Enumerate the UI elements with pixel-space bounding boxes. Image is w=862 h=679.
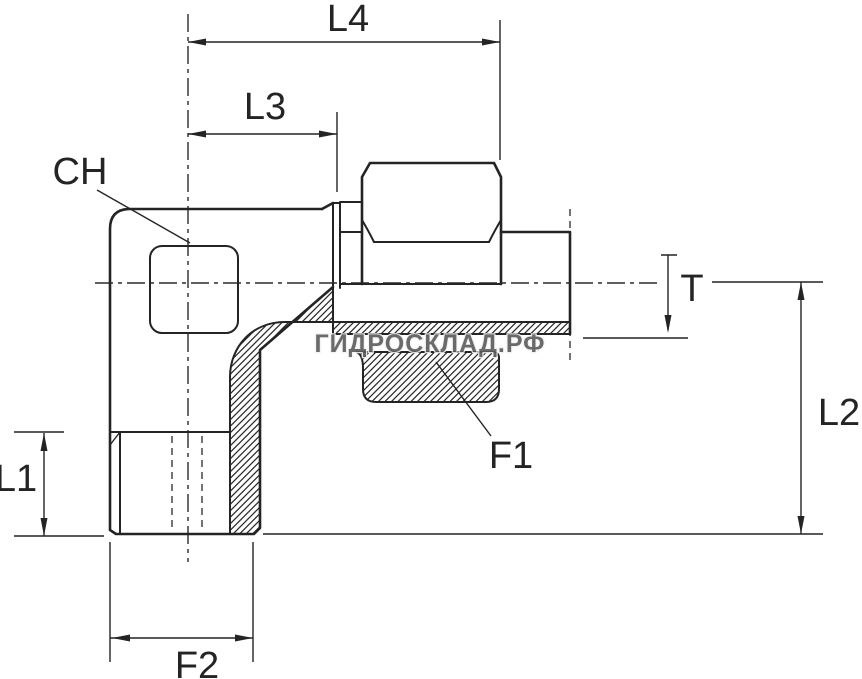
nut-profile (362, 163, 501, 284)
ext-lines-l2 (263, 282, 823, 534)
label-l3: L3 (244, 86, 286, 128)
body-top-chamfer (322, 203, 333, 209)
section-hatch-areas (230, 287, 570, 534)
arrowhead (188, 131, 206, 138)
ext-lines-f2 (110, 542, 253, 662)
arrowhead (798, 282, 805, 300)
arrowhead (482, 39, 500, 46)
arrowhead (41, 433, 48, 451)
technical-drawing-canvas: L4 L3 CH T L2 L1 F1 F2 ГИДРОСКЛАД.РФ (0, 0, 862, 679)
leg-thread-chamfer (110, 432, 120, 445)
label-l4: L4 (327, 0, 369, 40)
arrowhead (665, 315, 672, 333)
body-outer-profile (110, 209, 333, 534)
arrowhead (188, 39, 206, 46)
elbow-fitting-drawing: L4 L3 CH T L2 L1 F1 F2 ГИДРОСКЛАД.РФ (0, 0, 862, 679)
leg-bore-hidden-lines (172, 436, 202, 532)
arrowhead (235, 635, 253, 642)
nut-facet-blend-arcs (362, 220, 501, 242)
body-counterbore (150, 246, 238, 333)
arrowhead (798, 516, 805, 534)
body-wall-section-hatch (230, 287, 570, 534)
dim-lines-t (583, 255, 688, 338)
arrowhead (41, 518, 48, 536)
label-t: T (680, 268, 703, 310)
label-l1: L1 (0, 458, 37, 500)
centerlines (95, 14, 660, 562)
watermark-text: ГИДРОСКЛАД.РФ (314, 330, 545, 358)
arrowhead (319, 131, 337, 138)
label-l2: L2 (818, 392, 860, 434)
label-f2: F2 (175, 645, 219, 679)
label-ch: CH (53, 151, 108, 193)
collar-lines (333, 202, 362, 288)
label-f1: F1 (489, 435, 533, 477)
lower-nut-section-hatch (356, 352, 499, 402)
arrowhead (112, 635, 130, 642)
